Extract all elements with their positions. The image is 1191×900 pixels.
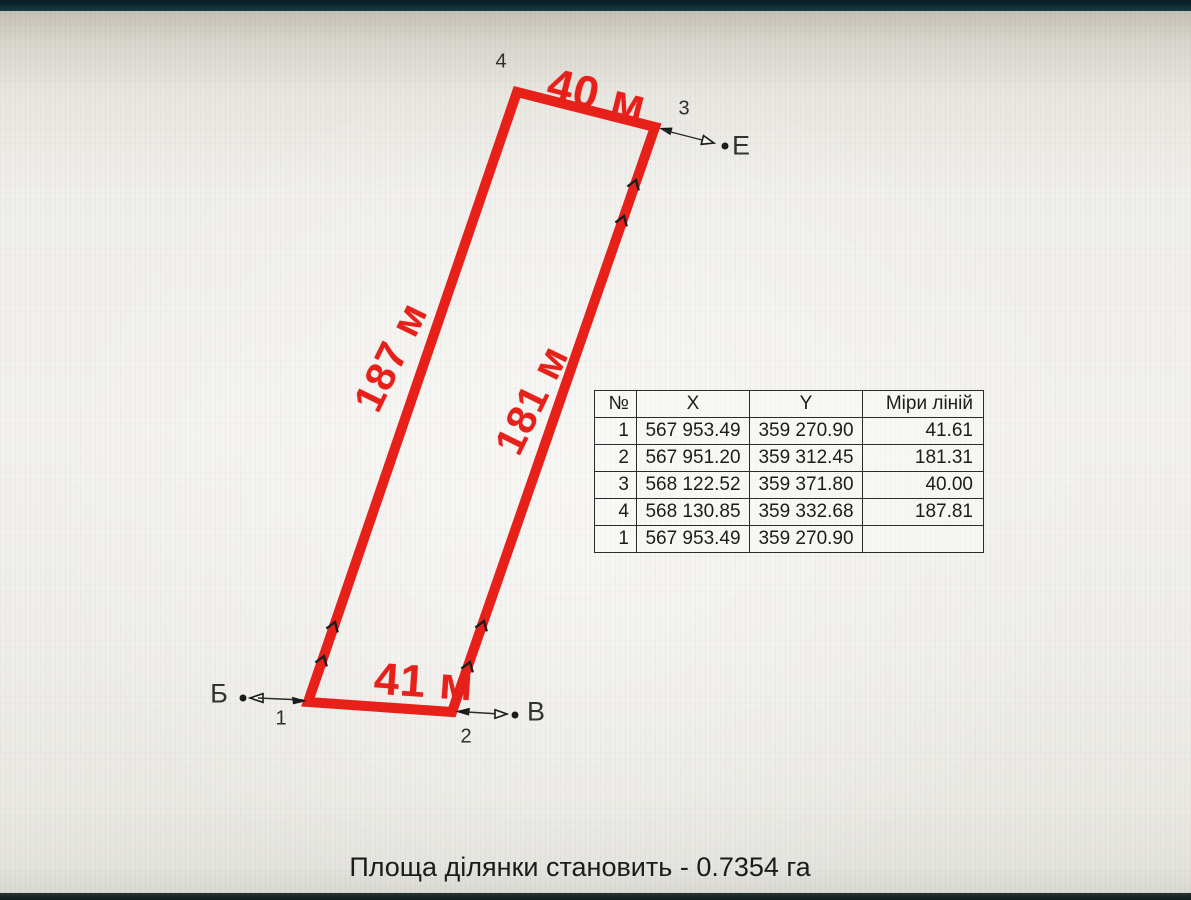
cell-y: 359 270.90 bbox=[750, 418, 863, 445]
side-length-bottom: 41 м bbox=[372, 653, 475, 712]
vertex-label-4: 4 bbox=[495, 51, 506, 74]
cell-point-number: 1 bbox=[595, 418, 637, 445]
table-row: 1 567 953.49 359 270.90 bbox=[595, 526, 984, 553]
cell-line-measure: 41.61 bbox=[863, 418, 984, 445]
header-number: № bbox=[595, 391, 637, 418]
arrow-to-point-e bbox=[659, 128, 729, 150]
cell-line-measure bbox=[863, 526, 984, 553]
cell-point-number: 4 bbox=[595, 499, 637, 526]
cell-y: 359 371.80 bbox=[750, 472, 863, 499]
table-row: 2 567 951.20 359 312.45 181.31 bbox=[595, 445, 984, 472]
cell-x: 567 953.49 bbox=[637, 418, 750, 445]
cell-y: 359 312.45 bbox=[750, 445, 863, 472]
cell-line-measure: 181.31 bbox=[863, 445, 984, 472]
table-row: 3 568 122.52 359 371.80 40.00 bbox=[595, 472, 984, 499]
cell-point-number: 2 bbox=[595, 445, 637, 472]
cell-point-number: 1 bbox=[595, 526, 637, 553]
cell-point-number: 3 bbox=[595, 472, 637, 499]
top-screen-bar bbox=[0, 0, 1191, 11]
cell-line-measure: 187.81 bbox=[863, 499, 984, 526]
arrow-to-point-b bbox=[240, 694, 308, 705]
bottom-screen-bar bbox=[0, 893, 1191, 900]
boundary-tick-marks bbox=[315, 178, 641, 672]
cell-y: 359 332.68 bbox=[750, 499, 863, 526]
adjacent-point-e: Е bbox=[732, 131, 750, 162]
adjacent-point-b: Б bbox=[210, 679, 228, 710]
cell-x: 568 130.85 bbox=[637, 499, 750, 526]
vertex-label-2: 2 bbox=[460, 726, 471, 749]
header-line-measure: Міри ліній bbox=[863, 391, 984, 418]
cell-x: 567 951.20 bbox=[637, 445, 750, 472]
cell-y: 359 270.90 bbox=[750, 526, 863, 553]
adjacent-point-v: В bbox=[527, 697, 545, 728]
document-photo: 40 м 187 м 181 м 41 м 4 3 1 2 Б В Е № X … bbox=[0, 0, 1191, 900]
cell-x: 567 953.49 bbox=[637, 526, 750, 553]
header-x: X bbox=[637, 391, 750, 418]
area-caption: Площа ділянки становить - 0.7354 га bbox=[0, 852, 1160, 883]
cell-x: 568 122.52 bbox=[637, 472, 750, 499]
table-row: 1 567 953.49 359 270.90 41.61 bbox=[595, 418, 984, 445]
coordinate-table: № X Y Міри ліній 1 567 953.49 359 270.90… bbox=[594, 390, 984, 553]
cell-line-measure: 40.00 bbox=[863, 472, 984, 499]
header-y: Y bbox=[750, 391, 863, 418]
table-row: 4 568 130.85 359 332.68 187.81 bbox=[595, 499, 984, 526]
vertex-label-3: 3 bbox=[678, 98, 689, 121]
table-header-row: № X Y Міри ліній bbox=[595, 391, 984, 418]
vertex-label-1: 1 bbox=[275, 708, 286, 731]
